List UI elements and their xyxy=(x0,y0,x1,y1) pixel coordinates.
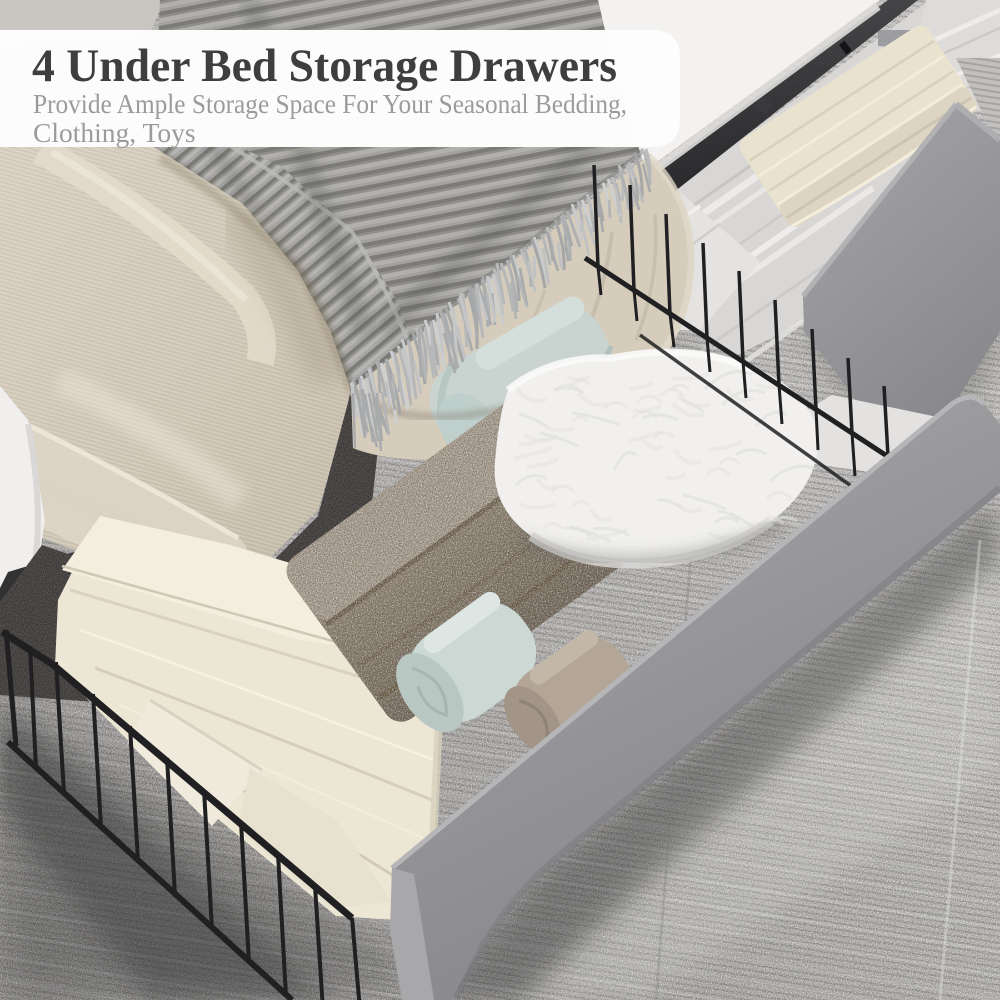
svg-text:Clothing, Toys: Clothing, Toys xyxy=(33,117,196,148)
svg-text:Provide Ample Storage Space Fo: Provide Ample Storage Space For Your Sea… xyxy=(33,88,627,119)
svg-text:4 Under Bed Storage Drawers: 4 Under Bed Storage Drawers xyxy=(32,40,617,92)
